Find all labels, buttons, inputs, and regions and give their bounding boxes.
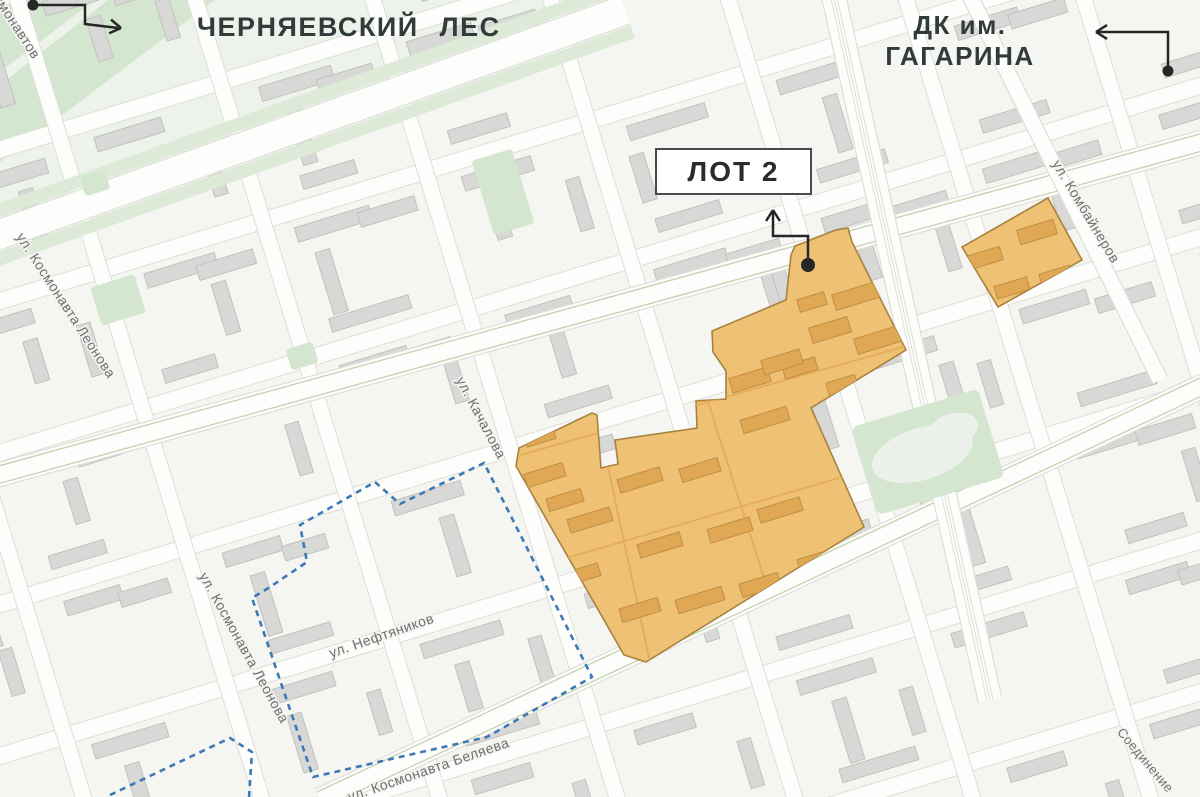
lot2-callout-box: ЛОТ 2 (655, 148, 812, 195)
city-map: шоссе Космонавтовул. Космонавта Леоновау… (0, 0, 1200, 797)
callout-dot (1163, 66, 1174, 77)
map-canvas: шоссе Космонавтовул. Космонавта Леоновау… (0, 0, 1200, 797)
callout-dot (28, 0, 39, 11)
map-stage: шоссе Космонавтовул. Космонавта Леоновау… (0, 0, 1200, 797)
callout-dot (801, 258, 815, 272)
